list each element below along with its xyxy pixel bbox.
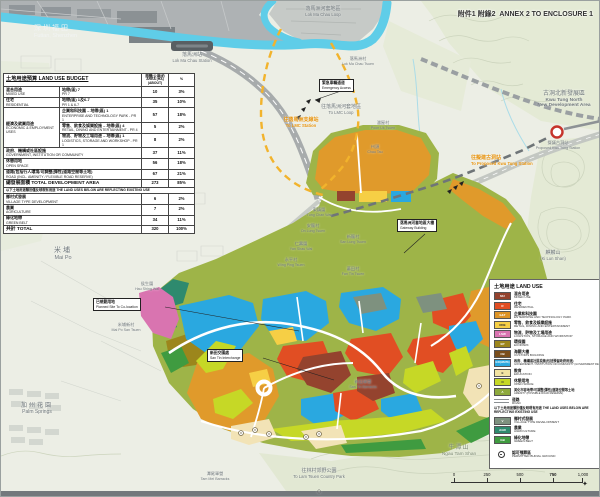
label-village-yan-shau-wai: 仁壽圍Yan Shau Wai <box>290 242 313 251</box>
legend-title: 土地用途 LAND USE <box>494 283 595 290</box>
annex-title: 附件1 附錄2 ANNEX 2 TO ENCLOSURE 1 <box>458 9 593 19</box>
legend-item-amenity: A 美化市容地帶/可調整(彈性)道路空間等土地AMENITY (POSSIBLE… <box>494 388 595 396</box>
table-header-row: 土地用途預算 LAND USE BUDGET 面積(公頃)約AREA (HA)(… <box>4 74 195 87</box>
label-to-lmc-loop: 往落馬洲河套地區To LMC Loop <box>321 105 361 116</box>
legend-swatch: LSW <box>494 330 511 338</box>
legend-item-mixed-use: MU 混合用途MIXED USE <box>494 292 595 300</box>
label-futian: 深圳福田Futian, Shenzhen <box>34 25 77 39</box>
palm-springs-estate <box>9 389 61 445</box>
table-row: 政府、機構或社區設施GOVERNMENT, INSTITUTION OR COM… <box>4 148 195 159</box>
proposed-kwu-tung-station-marker <box>552 127 563 138</box>
col-header-pct: % <box>169 74 195 87</box>
label-lam-tsuen-country-park: 往林村郊野公園To Lam Tsuen Country Park ◇ <box>293 469 345 497</box>
scale-bar-line <box>451 478 583 483</box>
legend-item-green-belt: GB 綠化地帶GREEN BELT <box>494 436 595 444</box>
legend-swatch: GB <box>494 436 511 444</box>
table-row: 經濟及就業用途ECONOMIC & EMPLOYMENT USES 企業和科技園… <box>4 108 195 123</box>
table-row: 綠化地帶GREEN BELT 3411% <box>4 215 195 226</box>
legend-swatch: E&T <box>494 311 511 319</box>
legend-swatch: O <box>494 378 511 386</box>
legend-item-retail-dining: RDE 零售、飲食及娛樂設施RETAIL, DINING AND ENTERTA… <box>494 321 595 329</box>
label-lmc-station: 落馬洲站Lok Ma Chau Station <box>172 53 211 64</box>
legend-item-agriculture: AGR 農業AGRICULTURE <box>494 426 595 434</box>
legend-swatch: G/IC(WHITE) <box>494 359 511 367</box>
label-ngau-tam-shan: 牛潭山Ngau Tam Shan <box>442 445 476 457</box>
legend-swatch: RDE <box>494 321 511 329</box>
legend-item-ecopark: EP 環保園ECOPARK <box>494 340 595 348</box>
label-ki-lun-shan: 麒麟山(Ki Lun Shan) <box>540 251 566 262</box>
annotation-emergency-access: 緊急車輛通道Emergency Access <box>319 79 354 92</box>
legend-swatch: AGR <box>494 426 511 434</box>
label-kwu-tung-north: 古洞北新發展區 Kwu Tung North New Development A… <box>537 91 590 109</box>
legend: 土地用途 LAND USE MU 混合用途MIXED USE R 住宅RESID… <box>489 279 600 469</box>
annex-title-zh: 附件1 附錄2 <box>458 11 496 18</box>
table-row: 休憩用地OPEN SPACE 5618% <box>4 158 195 169</box>
legend-item-education: E 教育EDUCATION <box>494 369 595 377</box>
label-palm-springs: 加州花園Palm Springs <box>21 403 53 416</box>
scale-bar: 0 250 500 750 1,000 Meters <box>451 472 597 483</box>
country-park-diamond-icon: ◇ <box>317 489 322 495</box>
label-village-tung-chan-wai: 東鎮圍Tung Chan Wai <box>307 208 332 217</box>
table-row: 鄉村式發展VILLAGE TYPE DEVELOPMENT 62% <box>4 194 195 205</box>
table-note-row: 以下土地用途類別僅反映現有用途 THE LAND USES BELOW ARE … <box>4 187 195 194</box>
legend-item-residential: R 住宅RESIDENTIAL <box>494 302 595 310</box>
label-lmc-tsuen: 落馬洲村Lok Ma Chau Tsuen <box>342 57 374 66</box>
lok-ma-chau-station-marker <box>171 41 213 51</box>
legend-swatch: EP <box>494 340 511 348</box>
label-village-fan-tin-tsuen: 蕃田村Fan Tin Tsuen <box>342 267 365 276</box>
road-lines-icon <box>494 398 509 404</box>
legend-item-customs-building: CB 海關大樓CUSTOMS BUILDING <box>494 350 595 358</box>
legend-item-village: V 鄉村式發展VILLAGE TYPE DEVELOPMENT <box>494 417 595 425</box>
label-mai-po: 米埔Mai Po <box>54 247 72 261</box>
col-header-area: 面積(公頃)約AREA (HA)(ABOUT) <box>142 74 169 87</box>
legend-item-road: 道路ROAD <box>494 398 595 405</box>
annotation-planned-site: 已規劃用地Planned Site To Co-location <box>93 298 141 311</box>
label-village-san-lung-tsuen: 新龍村San Lung Tsuen <box>340 235 366 244</box>
table-row-grand-total: 共計 TOTAL 320100% <box>4 226 195 234</box>
annotation-san-tin-interchange: 新田交匯處San Tin Interchange <box>207 349 243 362</box>
land-use-budget-table: 土地用途預算 LAND USE BUDGET 面積(公頃)約AREA (HA)(… <box>3 73 195 234</box>
label-lmc-loop: 落馬洲河套地區Lok Ma Chau Loop <box>305 7 340 18</box>
legend-item-enterprise-tech-park: E&T 企業和科技園ENTERPRISE AND TECHNOLOGY PARK <box>494 311 595 319</box>
legend-swatch: CB <box>494 350 511 358</box>
label-to-lmc-station: 往落馬洲支線站To LMC Station <box>283 118 318 129</box>
legend-swatch: V <box>494 417 511 425</box>
legend-item-burial-ground: 認可殯葬區PERMITTED BURIAL GROUND <box>494 445 595 463</box>
burial-ground-icon <box>494 445 509 463</box>
table-title: 土地用途預算 LAND USE BUDGET <box>4 74 142 87</box>
legend-swatch: MU <box>494 292 511 300</box>
label-proposed-kwu-tung-station: 擬議古洞站Proposed Kwu Tung Station <box>536 141 581 150</box>
table-row-total-development: 總發展面積 TOTAL DEVELOPMENT AREA 27385% <box>4 180 195 188</box>
label-village-wing-ping-tsuen: 永平村Wing Ping Tsuen <box>278 258 305 267</box>
table-row: 混合用途MIXED USE 地帶(區) 7PR 7 103% <box>4 87 195 98</box>
leader-arrowhead <box>315 98 321 104</box>
label-mai-po-san-tsuen: 米埔新村Mai Po San Tsuen <box>111 323 140 332</box>
label-san-tin-barracks: 新田軍營San Tin Barracks <box>349 380 376 389</box>
annotation-gateway-building: 落馬洲河套地區大樓Gateway Building <box>397 219 437 232</box>
map-page: 附件1 附錄2 ANNEX 2 TO ENCLOSURE 1 深圳福田Futia… <box>0 0 600 497</box>
legend-swatch: R <box>494 302 511 310</box>
label-to-proposed-kwu-tung: 往擬建古洞站To Proposed Kwu Tung Station <box>471 156 533 167</box>
legend-swatch: A <box>494 388 511 396</box>
label-hau-shing-wai: 侯生圍Hau Shing Wai <box>135 282 159 291</box>
table-row: 道路(包括行人環境/可調整(彈性)道路空間等土地)ROAD (INCL. AME… <box>4 169 195 180</box>
legend-note: 以下土地用途類別僅反映現有用途 THE LAND USES BELOW ARE … <box>494 407 595 415</box>
legend-item-gic: G/IC(WHITE) 政府、機構或社區設施(包括預留政府用途)GOVERNME… <box>494 359 595 367</box>
legend-item-logistics: LSW 物流、貯物及工場用途LOGISTICS, STORAGE AND WOR… <box>494 330 595 338</box>
label-village-chau-tau: 州頭Chau Tau <box>367 145 382 154</box>
legend-swatch: E <box>494 369 511 377</box>
table-row: 農業AGRICULTURE 72% <box>4 205 195 216</box>
label-tam-mei-barracks: 潭尾軍營Tam Mei Barracks <box>201 472 230 481</box>
label-poon-uk-tsuen: 潘屋村Poon Uk Tsuen <box>371 121 395 130</box>
table-row: 住宅RESIDENTIAL 地帶(區) 1及6-7PR 1 & 6-7 3510… <box>4 97 195 108</box>
label-village-on-lung-tsuen: 安龍村On Lung Tsuen <box>301 224 325 233</box>
legend-item-open-space: O 休憩用地OPEN SPACE <box>494 378 595 386</box>
annex-title-en: ANNEX 2 TO ENCLOSURE 1 <box>499 11 593 18</box>
north-compass-icon: ✦ <box>582 480 588 488</box>
